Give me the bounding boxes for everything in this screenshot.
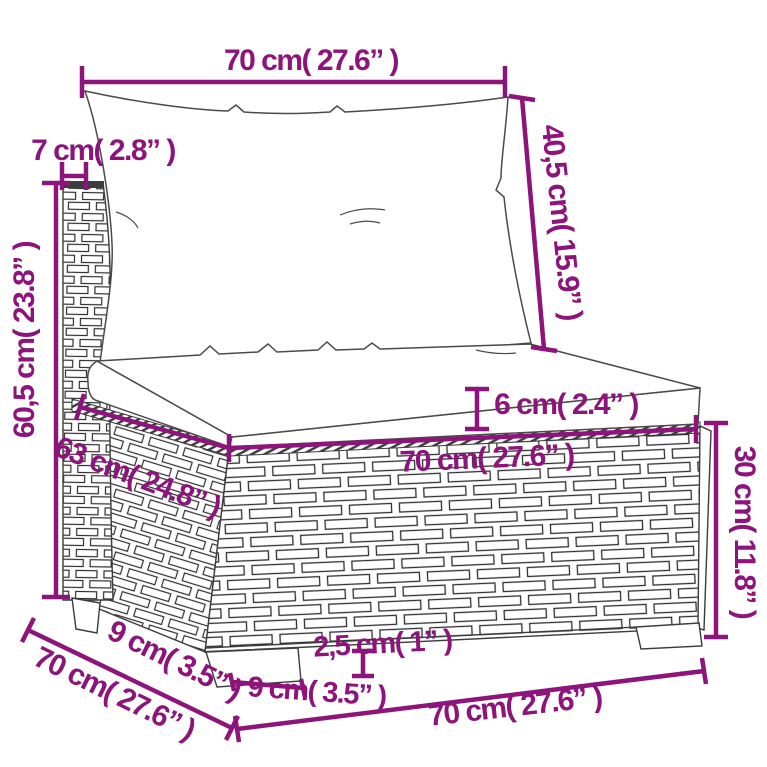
dim-back-cushion-width: 70 cm( 27.6” ) [82,44,505,98]
dim-back-cushion-height-label: 40,5 cm( 15.9” ) [535,123,588,322]
rear-left-leg [72,598,100,633]
dim-leg-height-label: 2,5 cm( 1” ) [313,624,454,663]
dim-base-height-label: 30 cm( 11.8” ) [728,446,761,619]
back-cushion-body [85,91,531,363]
back-cushion [85,91,531,363]
dim-base-height: 30 cm( 11.8” ) [704,423,761,637]
dim-leg-height: 2,5 cm( 1” ) [313,624,454,676]
sofa-dimension-drawing: 70 cm( 27.6” ) 7 cm( 2.8” ) 40,5 cm( 15.… [0,0,767,767]
dim-seat-cushion-thickness-label: 6 cm( 2.4” ) [494,388,638,421]
dim-back-cushion-width-label: 70 cm( 27.6” ) [224,44,399,77]
dim-total-height-label: 60,5 cm( 23.8” ) [8,241,41,438]
front-right-leg [636,623,702,649]
dim-base-width-label: 70 cm( 27.6” ) [427,680,604,733]
base-right-face [698,426,711,630]
product-dimension-diagram: 70 cm( 27.6” ) 7 cm( 2.8” ) 40,5 cm( 15.… [0,0,767,767]
dim-total-height: 60,5 cm( 23.8” ) [8,183,70,597]
dim-back-frame-thickness-label: 7 cm( 2.8” ) [31,134,175,167]
